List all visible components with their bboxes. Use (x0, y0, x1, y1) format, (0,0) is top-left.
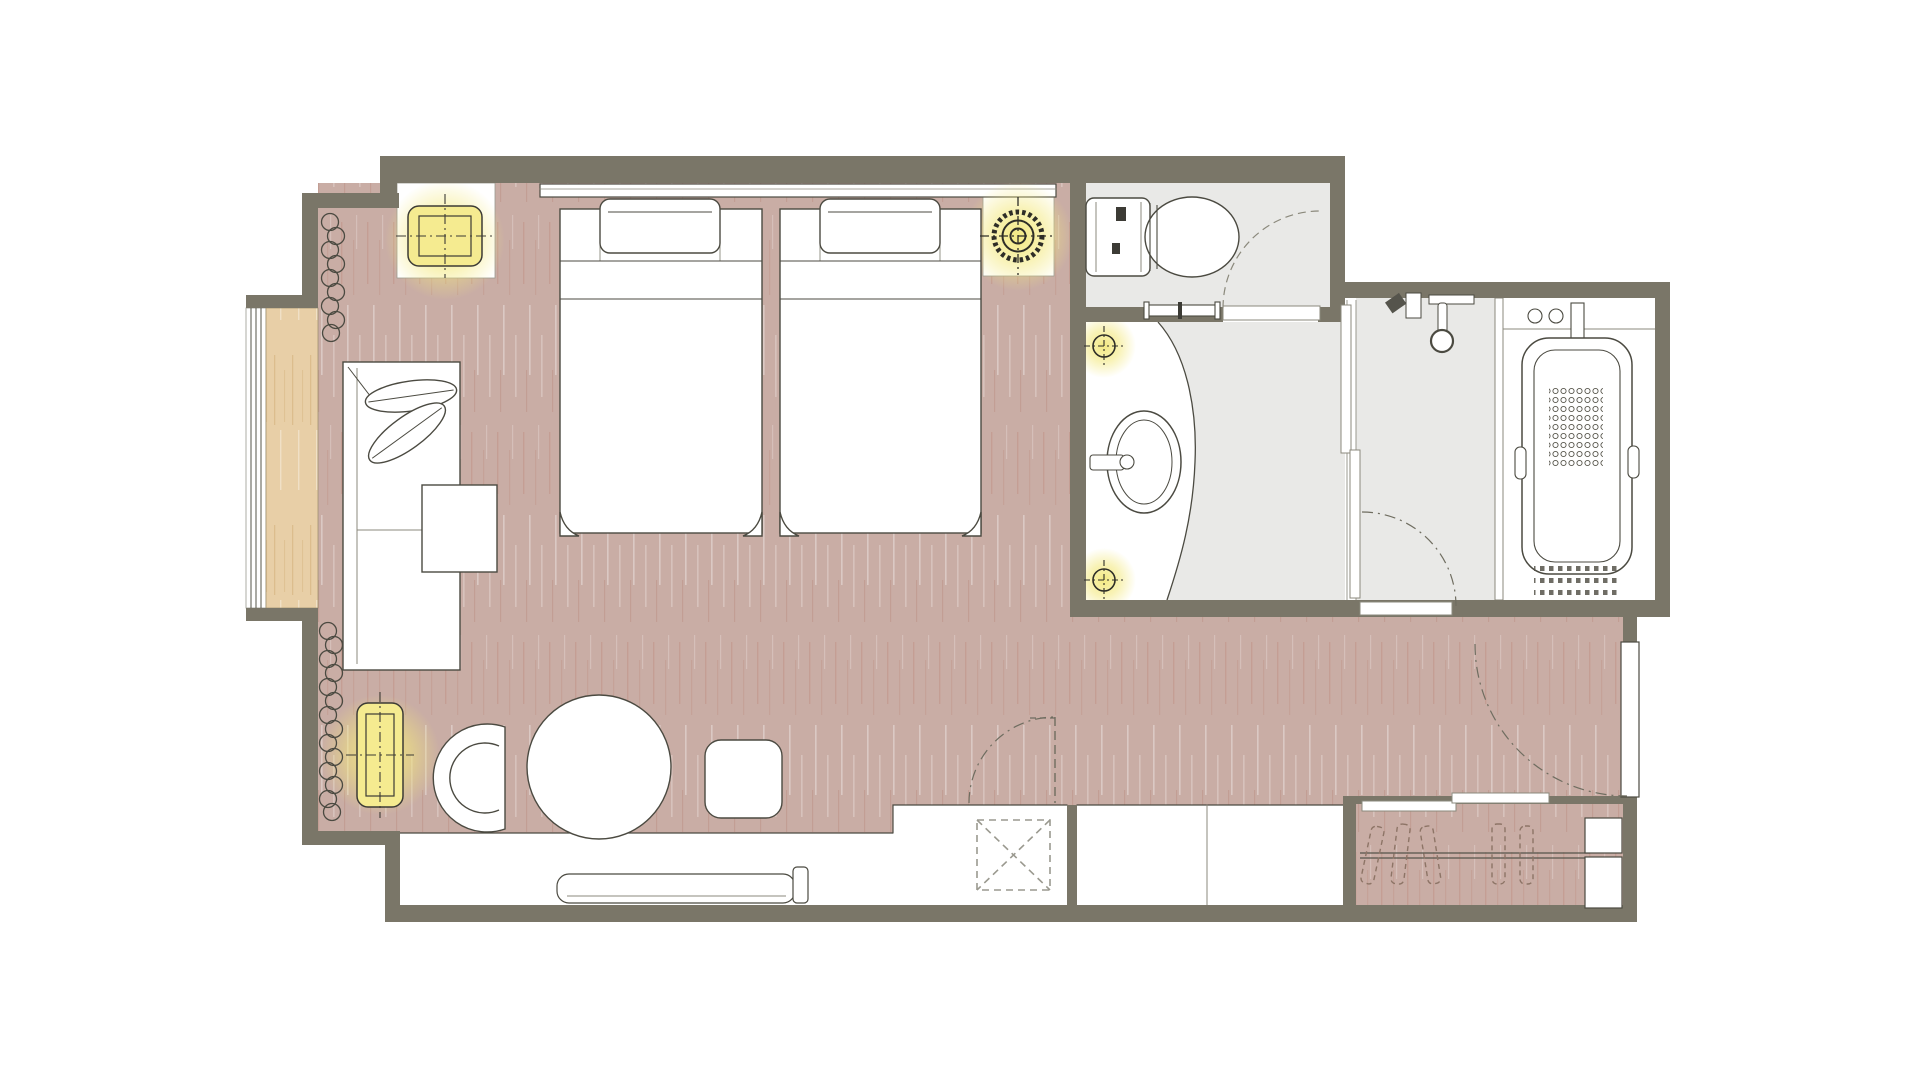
side-table (422, 485, 497, 572)
wall-bath-right (1655, 282, 1670, 617)
toilet-button (1116, 207, 1126, 221)
shoe-cabinet-lower (1585, 857, 1622, 908)
closet-door-leaf (1452, 793, 1549, 803)
window-sill (266, 308, 318, 608)
toilet (1086, 197, 1239, 277)
tub-grip (1628, 446, 1639, 478)
bed-mattress (560, 209, 762, 533)
shower-hose (1438, 303, 1447, 333)
wall-counter-stub (1067, 805, 1077, 922)
twin-bed-right (780, 199, 981, 536)
twin-bed-left (560, 199, 762, 536)
corridor-floor (1070, 617, 1623, 805)
shower-head (1431, 330, 1453, 352)
tub-drain-mat (1534, 560, 1620, 596)
shower-slide-bar (1429, 295, 1474, 304)
wall-left-lower (302, 608, 318, 845)
toilet-door-leaf (1223, 306, 1320, 320)
wall-closet-left (1343, 796, 1356, 922)
basin-faucet (1090, 455, 1124, 470)
pillow (820, 199, 940, 253)
shower-door-threshold (1360, 602, 1452, 615)
bed-mattress (780, 209, 981, 533)
shoe-cabinet-upper (1585, 818, 1622, 853)
basin-faucet-head (1120, 455, 1134, 469)
shower-tub-partition (1495, 298, 1503, 600)
toilet-bowl (1145, 197, 1239, 277)
wall-entry-right-upper (1623, 617, 1637, 642)
pillow (600, 199, 720, 253)
wall-bath-top (1343, 282, 1670, 298)
shower-room-floor (1356, 298, 1498, 600)
tub-grip (1515, 447, 1526, 479)
wall-window-top (246, 295, 318, 308)
wall-bedroom-right (1070, 183, 1086, 617)
floor-plan-canvas (0, 0, 1920, 1080)
sliding-door-leaf (1341, 305, 1351, 453)
tub-antislip-dots (1549, 386, 1603, 466)
wall-top (380, 156, 1345, 183)
counter-right (1077, 805, 1343, 907)
headboard (540, 184, 1056, 197)
wall-toilet-right (1330, 156, 1345, 322)
toilet-button (1112, 243, 1120, 254)
entrance-door-leaf (1621, 642, 1639, 797)
closet-door-leaf (1362, 801, 1456, 811)
towel-bar (1144, 302, 1220, 319)
round-table (527, 695, 671, 839)
wall-left-upper (302, 193, 318, 308)
tub-knob (1528, 309, 1542, 323)
shower-bracket (1406, 293, 1421, 318)
wall-entry-right-lower (1623, 797, 1637, 922)
sliding-door-leaf (1350, 450, 1360, 598)
floor-plan-drawing (0, 0, 1920, 1080)
wall-bottom (385, 905, 1637, 922)
stool (705, 740, 782, 818)
tub-knob (1549, 309, 1563, 323)
closet-floor (1349, 796, 1623, 908)
wall-vanity-bottom (1086, 600, 1343, 617)
